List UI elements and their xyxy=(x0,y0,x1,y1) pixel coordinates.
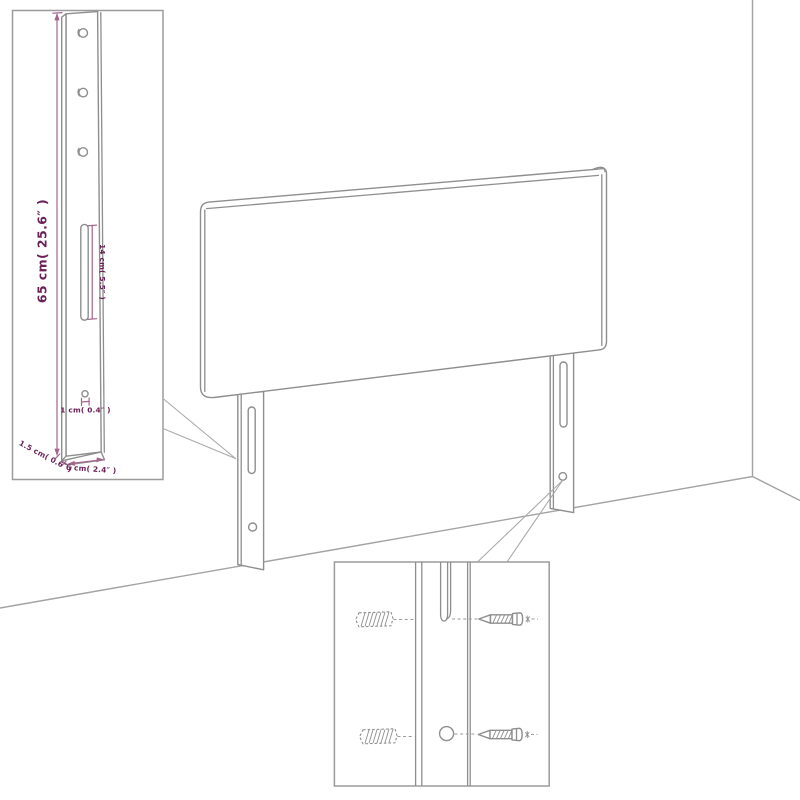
diagram-stage: 65 cm( 25.6″ ) 14 cm( 5.5″ ) 1 cm( 0.4″ … xyxy=(0,0,800,800)
bar-slot xyxy=(81,224,88,320)
dim-slot-label: 14 cm( 5.5″ ) xyxy=(98,244,107,300)
headboard-panel xyxy=(201,167,607,397)
dim-hole-line xyxy=(82,401,90,402)
bar-hole-2 xyxy=(79,88,88,97)
bar-hole-1 xyxy=(79,29,88,38)
mounting-detail-inset xyxy=(334,562,549,786)
leader-line-right-1 xyxy=(478,481,563,563)
assembly-diagram: 65 cm( 25.6″ ) 14 cm( 5.5″ ) 1 cm( 0.4″ … xyxy=(0,0,800,800)
leader-line-left-2 xyxy=(163,429,236,459)
left-leg-slot xyxy=(248,407,255,474)
leg-detail-bar xyxy=(62,12,105,465)
leg-detail-inset: 65 cm( 25.6″ ) 14 cm( 5.5″ ) 1 cm( 0.4″ … xyxy=(13,11,164,480)
dim-slot-cap-top xyxy=(88,225,97,226)
dim-height-top-cap xyxy=(53,13,62,14)
bar-hole-3 xyxy=(79,148,88,157)
leader-line-left-1 xyxy=(163,399,236,459)
left-leg-hole xyxy=(249,523,257,531)
mounting-inset-box xyxy=(334,562,549,786)
right-leg-slot xyxy=(560,362,567,427)
dim-slot-cap-bottom xyxy=(88,319,97,320)
bar-side-face xyxy=(62,14,66,461)
panel-outline xyxy=(201,169,607,398)
dim-hole-label: 1 cm( 0.4″ ) xyxy=(60,406,111,415)
bar-small-hole xyxy=(82,391,88,397)
strip-hole xyxy=(440,727,454,741)
dim-height-label: 65 cm( 25.6″ ) xyxy=(35,199,50,303)
bottom-inset-leaders xyxy=(478,481,563,563)
right-leg-hole xyxy=(559,473,567,481)
headboard-left-leg xyxy=(238,392,264,570)
left-inset-leaders xyxy=(163,399,236,459)
leader-line-right-2 xyxy=(507,481,563,563)
